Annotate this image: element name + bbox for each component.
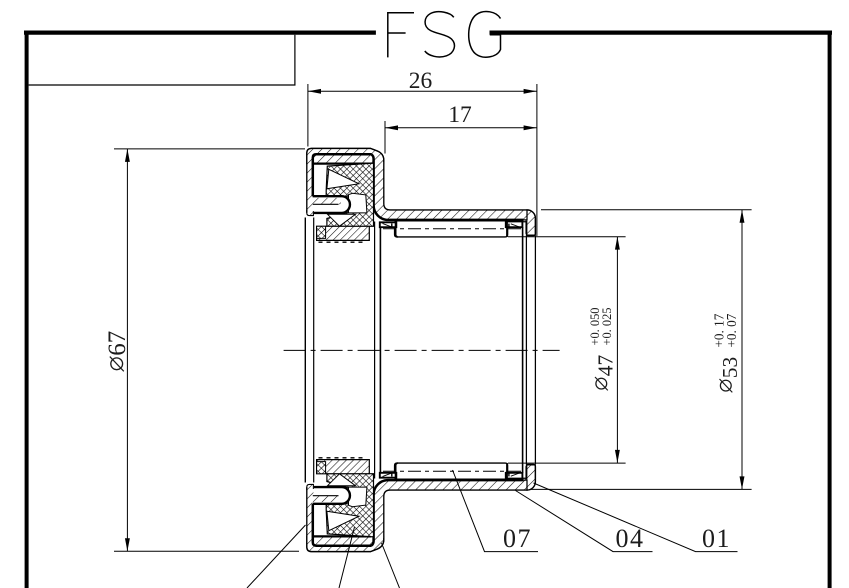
svg-text:53: 53 xyxy=(718,357,742,379)
svg-text:47: 47 xyxy=(593,354,617,376)
svg-text:+0. 025: +0. 025 xyxy=(600,308,614,346)
svg-text:26: 26 xyxy=(409,68,433,94)
svg-text:67: 67 xyxy=(104,331,131,356)
svg-text:07: 07 xyxy=(503,524,532,553)
svg-text:+0. 07: +0. 07 xyxy=(724,313,739,347)
svg-text:17: 17 xyxy=(448,102,472,128)
svg-text:01: 01 xyxy=(702,524,731,553)
